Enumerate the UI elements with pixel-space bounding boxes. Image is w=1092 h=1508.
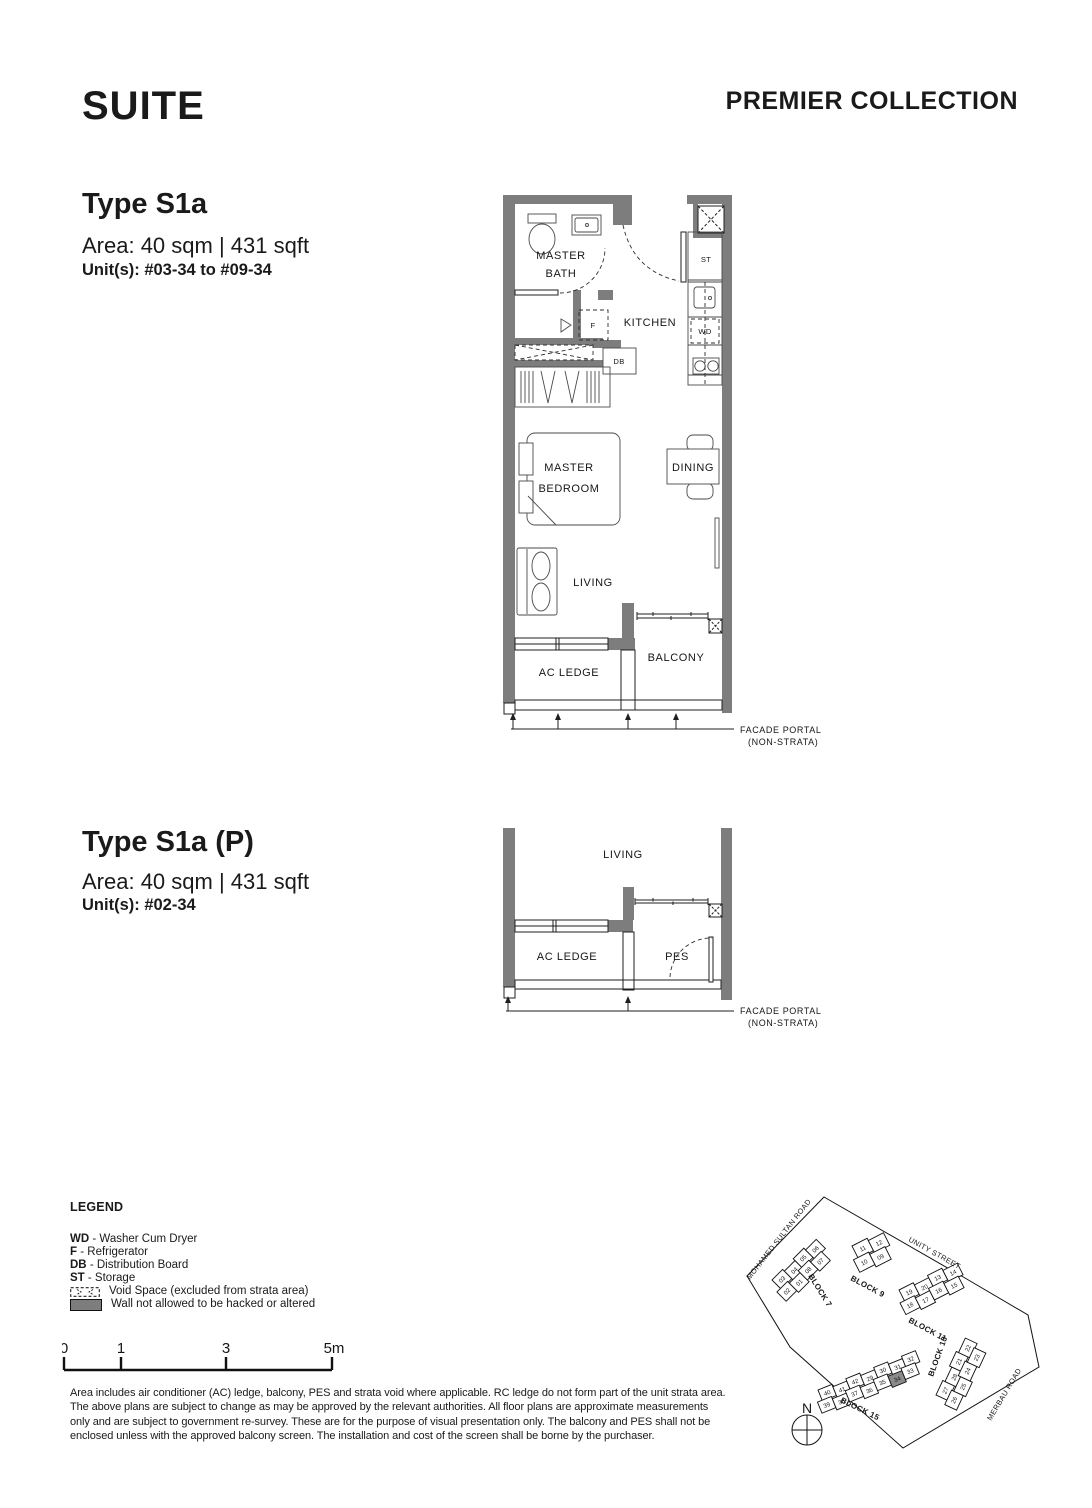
block-9-label: BLOCK 9 bbox=[849, 1274, 886, 1300]
scale-tick-1: 1 bbox=[117, 1340, 125, 1357]
label-balcony: BALCONY bbox=[648, 652, 705, 664]
collection-label: PREMIER COLLECTION bbox=[726, 87, 1018, 116]
scale-tick-5m: 5m bbox=[324, 1340, 345, 1357]
legend-title: LEGEND bbox=[70, 1200, 400, 1214]
label-db: DB bbox=[613, 357, 624, 366]
wall-icon bbox=[70, 1299, 102, 1311]
bed bbox=[519, 433, 620, 525]
label-ac-ledge: AC LEDGE bbox=[539, 667, 599, 679]
road-merbau: MERBAU ROAD bbox=[985, 1366, 1023, 1422]
legend-desc: - Distribution Board bbox=[90, 1259, 188, 1271]
label-master-bath-1: MASTER bbox=[536, 250, 585, 262]
legend-desc: - Washer Cum Dryer bbox=[92, 1233, 197, 1245]
label-st: ST bbox=[701, 255, 711, 264]
block-9-units: 11121009 bbox=[848, 1231, 896, 1275]
label-master-bath-2: BATH bbox=[546, 268, 577, 280]
entry-door bbox=[623, 225, 686, 282]
block-7-label: BLOCK 7 bbox=[806, 1272, 833, 1309]
legend-desc: - Storage bbox=[88, 1272, 135, 1284]
legend-abbr: WD bbox=[70, 1233, 89, 1245]
legend: LEGEND WD - Washer Cum Dryer F - Refrige… bbox=[70, 1200, 400, 1311]
legend-desc: - Refrigerator bbox=[80, 1246, 148, 1258]
plan1-area: Area: 40 sqm | 431 sqft bbox=[82, 233, 309, 259]
floorplan-s1a-p: LIVING AC LEDGE PES FACADE PORTAL (NON-S… bbox=[503, 827, 833, 1037]
north-label: N bbox=[802, 1400, 812, 1416]
label-facade-2: (NON-STRATA) bbox=[748, 1018, 818, 1028]
sofa bbox=[517, 548, 557, 615]
block-15-label: BLOCK 15 bbox=[839, 1396, 881, 1423]
legend-item-wall: Wall not allowed to be hacked or altered bbox=[70, 1298, 400, 1311]
label-bedroom-1: MASTER bbox=[544, 462, 593, 474]
label-bedroom-2: BEDROOM bbox=[538, 483, 599, 495]
legend-item-void: Void Space (excluded from strata area) bbox=[70, 1285, 400, 1298]
legend-item-f: F - Refrigerator bbox=[70, 1246, 400, 1259]
legend-item-st: ST - Storage bbox=[70, 1272, 400, 1285]
label-ac-ledge: AC LEDGE bbox=[537, 951, 597, 963]
facade-portal-callout: FACADE PORTAL (NON-STRATA) bbox=[510, 713, 822, 747]
brochure-page: SUITE PREMIER COLLECTION Type S1a Area: … bbox=[0, 0, 1092, 1508]
scale-tick-3: 3 bbox=[222, 1340, 230, 1357]
page-title: SUITE bbox=[82, 84, 205, 129]
tv-console bbox=[715, 518, 719, 568]
site-plan: 0304050602010807 11121009 19201314181716… bbox=[722, 1180, 1092, 1480]
label-pes: PES bbox=[665, 951, 689, 963]
duct-icon bbox=[698, 206, 724, 633]
floorplan-s1a: MASTER BATH KITCHEN ST WD F DB MASTER BE… bbox=[503, 195, 833, 755]
legend-void-label: Void Space (excluded from strata area) bbox=[109, 1285, 308, 1298]
legend-abbr: DB bbox=[70, 1259, 87, 1271]
road-unity-street: UNITY STREET bbox=[907, 1235, 962, 1271]
void-space-icon bbox=[70, 1287, 100, 1297]
plan2-type: Type S1a (P) bbox=[82, 826, 254, 859]
label-living: LIVING bbox=[603, 849, 643, 861]
label-living: LIVING bbox=[573, 577, 613, 589]
scale-bar: 0 1 3 5m bbox=[62, 1340, 362, 1376]
legend-abbr: F bbox=[70, 1246, 77, 1258]
label-facade-1: FACADE PORTAL bbox=[740, 1006, 822, 1016]
facade-portal-callout: FACADE PORTAL (NON-STRATA) bbox=[505, 996, 822, 1028]
duct-icon bbox=[709, 904, 722, 917]
label-kitchen: KITCHEN bbox=[624, 317, 676, 329]
windows-ledges bbox=[504, 898, 721, 998]
north-compass-icon: N bbox=[792, 1400, 822, 1445]
scale-tick-0: 0 bbox=[62, 1340, 68, 1357]
plan2-units: Unit(s): #02-34 bbox=[82, 896, 196, 915]
disclaimer-text: Area includes air conditioner (AC) ledge… bbox=[70, 1386, 730, 1443]
legend-item-db: DB - Distribution Board bbox=[70, 1259, 400, 1272]
block-13-label: BLOCK 13 bbox=[926, 1335, 949, 1378]
label-f: F bbox=[591, 321, 596, 330]
legend-item-wd: WD - Washer Cum Dryer bbox=[70, 1233, 400, 1246]
plan2-area: Area: 40 sqm | 431 sqft bbox=[82, 869, 309, 895]
legend-abbr: ST bbox=[70, 1272, 85, 1284]
label-facade-2: (NON-STRATA) bbox=[748, 737, 818, 747]
void-space bbox=[515, 345, 593, 360]
plan1-type: Type S1a bbox=[82, 188, 207, 221]
label-wd: WD bbox=[698, 327, 711, 336]
plan1-units: Unit(s): #03-34 to #09-34 bbox=[82, 261, 272, 280]
label-facade-1: FACADE PORTAL bbox=[740, 725, 822, 735]
legend-wall-label: Wall not allowed to be hacked or altered bbox=[111, 1298, 315, 1311]
label-dining: DINING bbox=[672, 462, 714, 474]
wardrobe bbox=[515, 367, 610, 407]
